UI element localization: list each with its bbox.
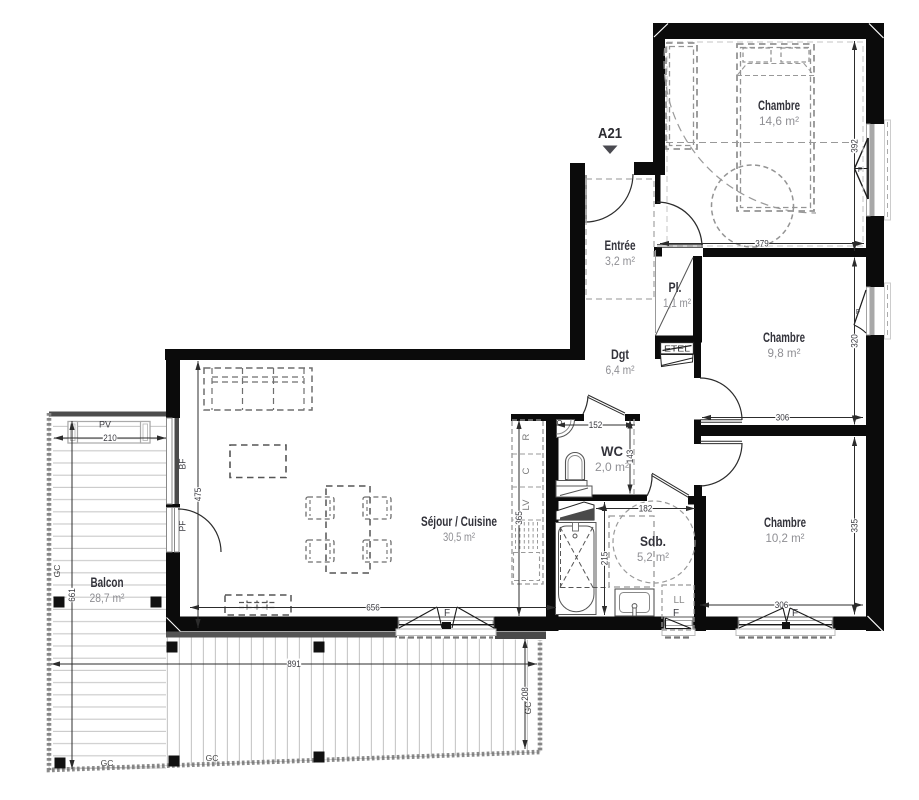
svg-text:10,2 m²: 10,2 m² bbox=[766, 531, 805, 545]
svg-text:Chambre: Chambre bbox=[758, 98, 800, 113]
svg-text:Dgt: Dgt bbox=[611, 347, 629, 362]
svg-text:F: F bbox=[856, 309, 860, 316]
svg-text:A21: A21 bbox=[598, 126, 622, 142]
svg-text:GC: GC bbox=[206, 753, 219, 763]
svg-text:306: 306 bbox=[775, 600, 789, 610]
svg-text:208: 208 bbox=[520, 687, 530, 701]
svg-text:Sdb.: Sdb. bbox=[640, 534, 666, 549]
svg-text:210: 210 bbox=[103, 433, 117, 443]
svg-text:GC: GC bbox=[101, 758, 114, 768]
svg-text:F: F bbox=[673, 608, 679, 619]
svg-text:14,6 m²: 14,6 m² bbox=[759, 114, 799, 128]
svg-text:Chambre: Chambre bbox=[763, 330, 805, 345]
svg-text:306: 306 bbox=[776, 412, 790, 422]
svg-text:182: 182 bbox=[639, 503, 653, 513]
svg-text:Séjour / Cuisine: Séjour / Cuisine bbox=[421, 514, 497, 529]
svg-text:335: 335 bbox=[849, 519, 859, 533]
svg-text:9,8 m²: 9,8 m² bbox=[768, 346, 801, 360]
svg-text:F: F bbox=[858, 167, 862, 174]
svg-text:1,1 m²: 1,1 m² bbox=[663, 296, 691, 310]
svg-text:PV: PV bbox=[99, 420, 111, 430]
svg-text:LV: LV bbox=[521, 499, 532, 511]
svg-text:661: 661 bbox=[67, 588, 77, 602]
svg-text:BF: BF bbox=[178, 458, 188, 469]
svg-text:475: 475 bbox=[193, 488, 203, 502]
svg-text:F: F bbox=[792, 608, 798, 619]
svg-text:3,2 m²: 3,2 m² bbox=[605, 254, 635, 268]
svg-text:GC: GC bbox=[52, 565, 62, 578]
svg-text:392: 392 bbox=[849, 139, 859, 153]
svg-text:PF: PF bbox=[178, 520, 188, 531]
svg-text:F: F bbox=[444, 608, 450, 619]
svg-text:656: 656 bbox=[366, 602, 380, 612]
svg-text:Chambre: Chambre bbox=[764, 515, 806, 530]
svg-text:5,2 m²: 5,2 m² bbox=[637, 550, 669, 564]
svg-text:Pl.: Pl. bbox=[669, 280, 682, 295]
svg-text:GC: GC bbox=[523, 702, 533, 715]
svg-text:215: 215 bbox=[599, 552, 609, 566]
svg-text:365: 365 bbox=[514, 511, 524, 525]
svg-text:LL: LL bbox=[673, 595, 685, 606]
svg-text:320: 320 bbox=[849, 334, 859, 348]
svg-text:891: 891 bbox=[287, 659, 301, 669]
svg-text:R: R bbox=[521, 433, 532, 440]
svg-text:6,4 m²: 6,4 m² bbox=[606, 363, 635, 377]
svg-text:2,0 m²: 2,0 m² bbox=[595, 460, 629, 474]
svg-text:30,5 m²: 30,5 m² bbox=[443, 530, 475, 544]
svg-text:379: 379 bbox=[755, 238, 769, 248]
svg-text:28,7 m²: 28,7 m² bbox=[90, 591, 125, 605]
svg-text:WC: WC bbox=[601, 444, 623, 459]
svg-text:152: 152 bbox=[589, 420, 603, 430]
svg-text:Entrée: Entrée bbox=[605, 238, 636, 253]
svg-text:C: C bbox=[521, 467, 532, 474]
svg-text:Balcon: Balcon bbox=[91, 575, 124, 590]
